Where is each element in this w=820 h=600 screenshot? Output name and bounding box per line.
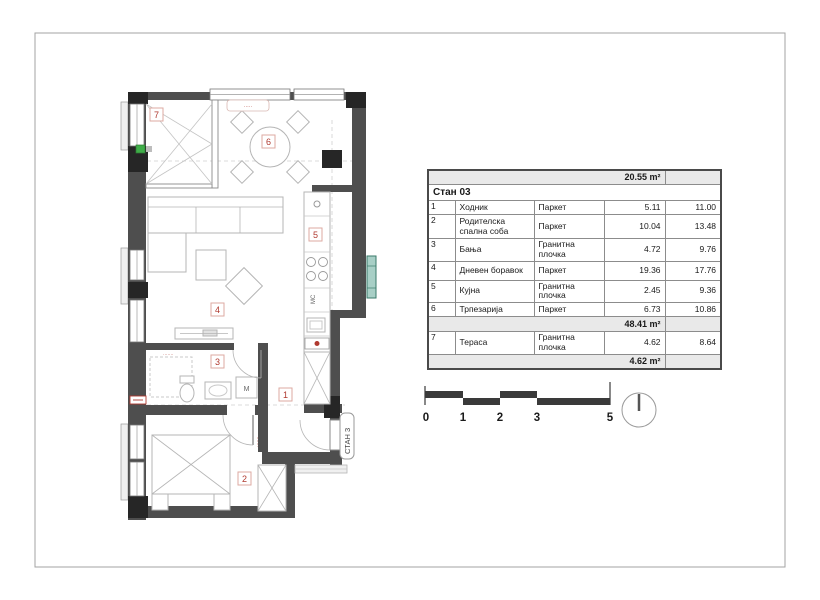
green-marker: [136, 145, 145, 153]
duct: [367, 256, 376, 298]
scale-tick-1: 1: [460, 412, 467, 424]
row-no: 6: [428, 303, 455, 317]
svg-text:2: 2: [242, 474, 247, 484]
apartment-tag: СТАН 3: [343, 428, 352, 454]
svg-text:4: 4: [215, 305, 220, 315]
entrance-door-leaf: [330, 420, 340, 450]
chair: [231, 161, 254, 184]
pre-total-value: 20.55 m²: [428, 170, 665, 184]
subtotal-value: 48.41 m²: [428, 317, 665, 332]
table-row: 6 Трпезарија Паркет 6.73 10.86: [428, 303, 721, 317]
sofa: [148, 197, 283, 233]
table-title-row: Стан 03: [428, 184, 721, 201]
row-no: 2: [428, 215, 455, 239]
toilet: [180, 384, 194, 402]
scale-bar: 0 1 2 3 5: [423, 382, 614, 424]
bathroom-door-arc: [233, 350, 261, 378]
row-floor: Паркет: [534, 303, 604, 317]
nightstand: [152, 494, 168, 510]
row-no: 4: [428, 261, 455, 280]
window-sills: [121, 102, 128, 500]
row-floor: Гранитна плочка: [534, 332, 604, 355]
row-name: Бања: [455, 239, 534, 262]
row-floor: Гранитна плочка: [534, 239, 604, 262]
living-room: [148, 197, 283, 339]
floor-plan: МС: [121, 89, 376, 520]
row-floor: Паркет: [534, 201, 604, 215]
table-row: 1 Ходник Паркет 5.11 11.00: [428, 201, 721, 215]
row-area: 6.73: [604, 303, 665, 317]
chair: [231, 111, 254, 134]
svg-text:3: 3: [215, 357, 220, 367]
row-perimeter: 11.00: [665, 201, 721, 215]
svg-text:7: 7: [154, 110, 159, 120]
toilet-tank: [180, 376, 194, 383]
row-area: 2.45: [604, 280, 665, 303]
scale-tick-5: 5: [607, 412, 614, 424]
table-row: 2 Родителска спална соба Паркет 10.04 13…: [428, 215, 721, 239]
armchair: [226, 268, 263, 305]
window-tag: ·····: [227, 100, 269, 111]
chair: [287, 161, 310, 184]
table-row: 5 Кујна Гранитна плочка 2.45 9.36: [428, 280, 721, 303]
svg-text:1: 1: [283, 390, 288, 400]
scale-tick-2: 2: [497, 412, 503, 424]
bathroom: М ·······: [130, 350, 261, 404]
svg-text:5: 5: [313, 230, 318, 240]
row-no: 5: [428, 280, 455, 303]
row-area: 5.11: [604, 201, 665, 215]
pre-total-row: 20.55 m²: [428, 170, 721, 184]
subtotal-row: 48.41 m²: [428, 317, 721, 332]
north-indicator: [622, 393, 656, 427]
scale-tick-3: 3: [534, 412, 540, 424]
row-perimeter: 13.48: [665, 215, 721, 239]
entrance-door-arc: [300, 420, 330, 450]
room-badge-3: 3: [211, 355, 224, 368]
bedroom-door-annotation: ·······: [255, 437, 260, 448]
row-name: Родителска спална соба: [455, 215, 534, 239]
room-badge-6: 6: [262, 135, 275, 148]
gray-marker: [146, 146, 152, 152]
tv: [203, 330, 217, 336]
svg-text:6: 6: [266, 137, 271, 147]
room-badge-1: 1: [279, 388, 292, 401]
row-name: Кујна: [455, 280, 534, 303]
table-row: 3 Бања Гранитна плочка 4.72 9.76: [428, 239, 721, 262]
valve-icon: [315, 341, 320, 346]
row-name: Тераса: [455, 332, 534, 355]
row-name: Трпезарија: [455, 303, 534, 317]
washer-label: М: [244, 386, 250, 393]
row-perimeter: 9.76: [665, 239, 721, 262]
total-row: 4.62 m²: [428, 354, 721, 369]
row-no: 1: [428, 201, 455, 215]
room-badge-5: 5: [309, 228, 322, 241]
room-badge-7: 7: [150, 108, 163, 121]
chair: [287, 111, 310, 134]
row-floor: Паркет: [534, 261, 604, 280]
drawing-sheet: МС: [0, 0, 820, 600]
row-name: Дневен боравок: [455, 261, 534, 280]
room-badge-2: 2: [238, 472, 251, 485]
row-floor: Гранитна плочка: [534, 280, 604, 303]
bathroom-annotation: ·······: [163, 352, 174, 357]
row-no: 7: [428, 332, 455, 355]
kitchen: МС: [304, 192, 330, 404]
row-perimeter: 10.86: [665, 303, 721, 317]
sofa-chaise: [148, 233, 186, 272]
row-area: 19.36: [604, 261, 665, 280]
kitchen-ms-label: МС: [311, 294, 317, 304]
coffee-table: [196, 250, 226, 280]
row-area: 10.04: [604, 215, 665, 239]
apartment-title: Стан 03: [428, 184, 721, 201]
row-perimeter: 9.36: [665, 280, 721, 303]
total-value: 4.62 m²: [428, 354, 665, 369]
row-no: 3: [428, 239, 455, 262]
scale-tick-0: 0: [423, 412, 429, 424]
row-perimeter: 8.64: [665, 332, 721, 355]
row-perimeter: 17.76: [665, 261, 721, 280]
area-table: 20.55 m² Стан 03 1 Ходник Паркет 5.11 11…: [427, 169, 722, 370]
table-row: 7 Тераса Гранитна плочка 4.62 8.64: [428, 332, 721, 355]
row-floor: Паркет: [534, 215, 604, 239]
nightstand: [214, 494, 230, 510]
row-name: Ходник: [455, 201, 534, 215]
row-area: 4.62: [604, 332, 665, 355]
room-badge-4: 4: [211, 303, 224, 316]
row-area: 4.72: [604, 239, 665, 262]
table-row: 4 Дневен боравок Паркет 19.36 17.76: [428, 261, 721, 280]
svg-text:·····: ·····: [244, 104, 253, 110]
